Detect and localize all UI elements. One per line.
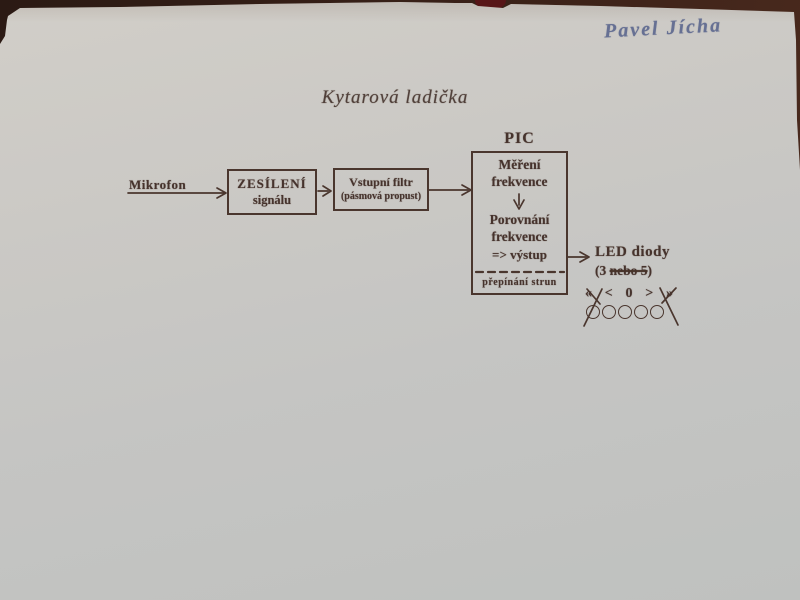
pic-box: Měření frekvence Porovnání frekvence => …	[471, 151, 568, 295]
symbol-zero: 0	[625, 286, 632, 302]
led-count-struck-text: nebo 5	[610, 263, 648, 278]
amplifier-line1: ZESÍLENÍ	[229, 175, 315, 192]
pic-footer-label: přepínání strun	[473, 277, 566, 288]
led-circle	[634, 305, 648, 319]
pic-compare-step: Porovnání frekvence	[473, 211, 566, 245]
led-circle-row	[586, 305, 664, 319]
filter-line2: (pásmová propust)	[335, 190, 427, 204]
page-title: Kytarová ladička	[305, 87, 485, 109]
symbol-double-right-chevron: »	[666, 286, 673, 302]
amplifier-line2: signálu	[229, 192, 315, 209]
filter-line1: Vstupní filtr	[335, 175, 427, 190]
amplifier-box: ZESÍLENÍ signálu	[227, 169, 317, 215]
symbol-left-chevron: <	[605, 286, 613, 302]
led-circle	[586, 305, 600, 319]
pic-compare-line2: frekvence	[473, 228, 566, 245]
led-circle	[602, 305, 616, 319]
led-output-label: LED diody (3 nebo 5)	[595, 243, 670, 280]
led-label-line1: LED diody	[595, 243, 670, 262]
led-count-suffix: )	[648, 263, 653, 278]
pic-measure-step: Měření frekvence	[473, 156, 566, 190]
pic-measure-line2: frekvence	[473, 173, 566, 190]
led-circle	[650, 305, 664, 319]
microphone-label: Mikrofon	[129, 177, 186, 193]
pic-measure-line1: Měření	[473, 156, 566, 173]
pic-compare-line1: Porovnání	[473, 211, 566, 228]
symbol-right-chevron: >	[645, 286, 653, 302]
symbol-double-left-chevron: «	[585, 286, 592, 302]
pic-chip-label: PIC	[471, 130, 568, 148]
input-filter-box: Vstupní filtr (pásmová propust)	[333, 168, 429, 211]
photo-scene: Pavel Jícha Kytarová ladička Mikrofon ZE…	[0, 0, 800, 600]
led-label-line2: (3 nebo 5)	[595, 262, 670, 280]
pic-output-line: => výstup	[473, 247, 566, 263]
led-count-prefix: (3	[595, 263, 610, 278]
led-circle	[618, 305, 632, 319]
led-symbol-row: « < 0 > »	[585, 286, 673, 302]
handwritten-name: Pavel Jícha	[604, 12, 775, 44]
